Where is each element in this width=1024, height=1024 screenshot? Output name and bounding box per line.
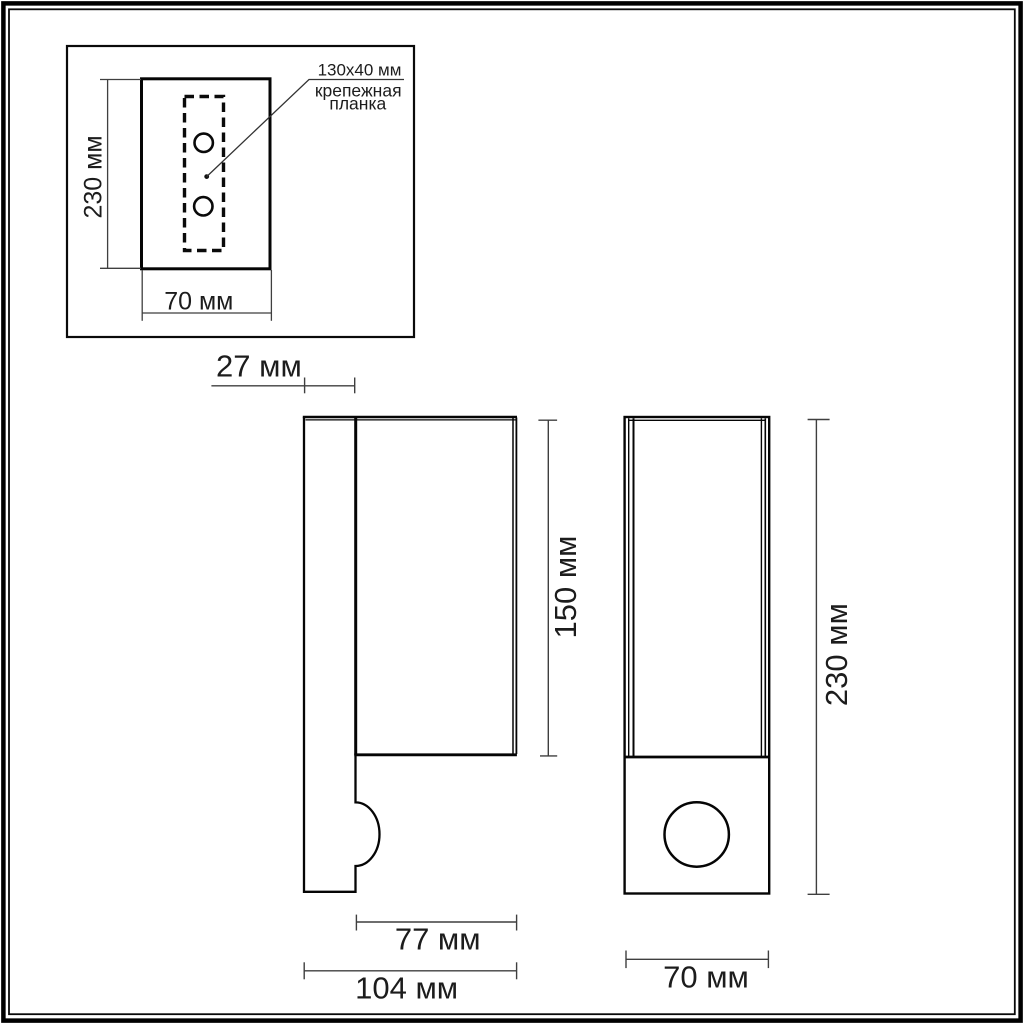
svg-text:130x40 мм: 130x40 мм [318, 61, 402, 80]
svg-text:150 мм: 150 мм [548, 536, 583, 639]
svg-text:70 мм: 70 мм [164, 288, 233, 316]
svg-text:230 мм: 230 мм [80, 135, 108, 218]
svg-text:230 мм: 230 мм [819, 603, 854, 706]
svg-text:70 мм: 70 мм [663, 959, 749, 994]
svg-text:27 мм: 27 мм [216, 349, 302, 384]
svg-text:104 мм: 104 мм [355, 970, 458, 1005]
svg-text:77 мм: 77 мм [395, 922, 481, 957]
svg-text:планка: планка [329, 94, 386, 114]
